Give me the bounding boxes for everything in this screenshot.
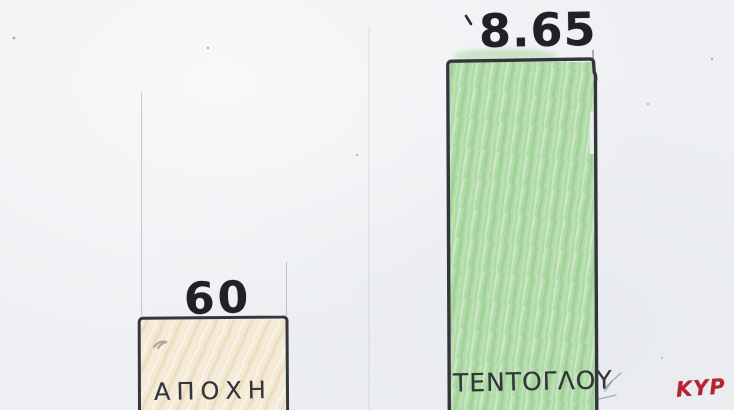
chart-drawing [0,0,734,410]
paper-specks [13,37,714,359]
tick-mark [466,16,471,24]
artist-signature: ΚΥΡ [675,376,726,400]
bar-tentoglou [448,49,599,410]
value-label-tentoglou: 8.65 [479,6,597,54]
category-label-apoxi: ΑΠΟΧΗ [154,378,272,404]
category-label-tentoglou: ΤΕΝΤΟΓΛΟΥ [453,367,613,395]
value-label-apoxi: 60 [183,276,252,322]
scanned-cartoon-chart: 60 8.65 ΑΠΟΧΗ ΤΕΝΤΟΓΛΟΥ ΚΥΡ [0,0,734,410]
